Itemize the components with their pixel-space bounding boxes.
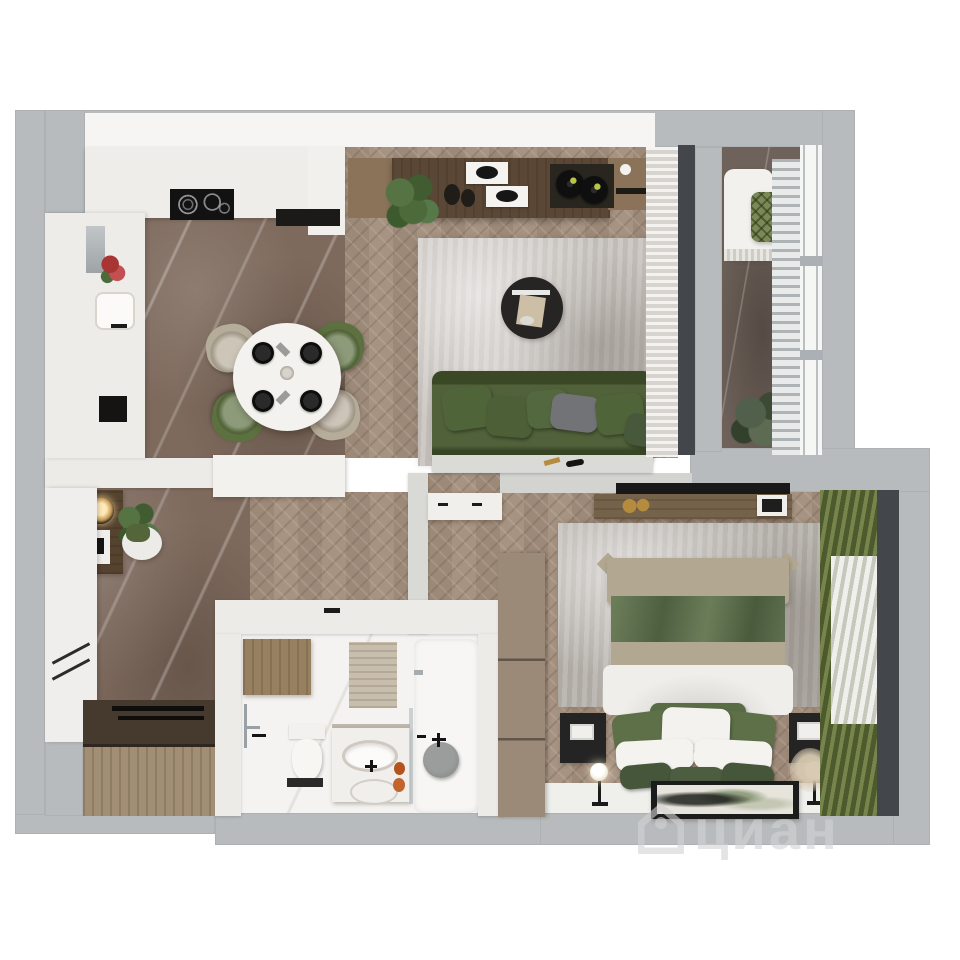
orange-bottle xyxy=(393,778,405,792)
bedroom-open-door xyxy=(428,493,502,520)
living-room-curtain xyxy=(646,147,678,457)
hall-bench-front xyxy=(83,744,215,816)
bathtub xyxy=(414,639,478,813)
bathroom-wall-top xyxy=(215,600,507,634)
window-mullion-line xyxy=(803,145,805,455)
door-handle xyxy=(438,503,448,506)
orange-bottle xyxy=(394,762,405,775)
mirror-reflection-sink xyxy=(350,779,398,805)
balcony-radiator xyxy=(772,159,800,455)
toilet-cistern xyxy=(289,724,325,739)
shower-handle xyxy=(417,735,426,738)
bathroom-door-handle xyxy=(324,608,340,613)
floor-lamp-left xyxy=(590,763,608,781)
hall-white-cabinet xyxy=(213,455,345,497)
hall-left-wall-notch xyxy=(45,740,83,816)
lounge-chair-fringe xyxy=(724,249,773,261)
tray-bowl xyxy=(496,190,518,202)
outer-wall-left xyxy=(15,110,45,834)
dining-plate xyxy=(300,390,322,412)
gold-decor xyxy=(620,497,652,515)
towel-rail xyxy=(244,726,260,729)
window-mullion-line xyxy=(816,145,818,455)
cian-house-logo-icon xyxy=(638,804,684,854)
sofa-pillow-gray xyxy=(549,392,601,434)
shower-stool xyxy=(423,742,459,778)
floor-plan-stage: циан xyxy=(0,0,960,960)
bathroom-wood-cabinet xyxy=(243,639,311,695)
upper-cabinets-strip xyxy=(83,113,655,147)
floor-lamp-left-stem xyxy=(598,780,601,804)
nightstand-tablet xyxy=(570,724,594,740)
sink-faucet-cross xyxy=(370,760,373,772)
window-mullion-h xyxy=(800,350,822,360)
coffee-table-dish xyxy=(520,316,534,325)
dining-plate xyxy=(252,342,274,364)
bathroom-wall-left xyxy=(215,634,241,816)
kitchen-hall-wall xyxy=(45,458,215,488)
bench-mat xyxy=(118,716,204,720)
bedroom-curtain-pelmet xyxy=(877,490,899,816)
watermark-cian: циан xyxy=(638,798,878,860)
floor-lamp-left-base xyxy=(592,802,608,806)
balcony-outer-wall-right xyxy=(822,110,855,455)
outer-wall-topleft-corner xyxy=(45,110,85,213)
outer-wall-bottom-center xyxy=(215,813,545,845)
outer-wall-bottom-left xyxy=(15,814,215,834)
dining-plate xyxy=(252,390,274,412)
dining-plate xyxy=(300,342,322,364)
coffee-machine xyxy=(99,396,127,422)
pouf-green-throw xyxy=(126,524,150,542)
bench-mat xyxy=(112,706,204,711)
tub-handle xyxy=(414,670,423,675)
tray-bowl xyxy=(476,166,498,179)
living-balcony-divider-wall xyxy=(695,147,722,452)
sink-faucet xyxy=(111,324,127,328)
sofa-back-console xyxy=(432,455,653,472)
cooktop xyxy=(170,189,234,220)
bedroom-sheer-curtain xyxy=(831,556,878,724)
console-plant xyxy=(382,168,442,238)
table-centerpiece xyxy=(280,366,294,380)
toilet xyxy=(292,739,322,781)
red-flowers xyxy=(99,252,127,287)
console-vase xyxy=(444,184,460,205)
bedroom-wall-tv xyxy=(616,483,790,494)
counter-black-appliance xyxy=(276,209,340,226)
shower-glass-partition xyxy=(409,708,413,804)
window-mullion-h xyxy=(800,256,822,266)
doorway-floor-patch xyxy=(428,473,500,493)
bath-mat xyxy=(287,778,323,787)
vinyl-record xyxy=(580,176,608,204)
watermark-text: циан xyxy=(694,797,840,862)
bed-green-runner xyxy=(611,596,785,644)
coffee-table-tray xyxy=(512,290,550,295)
shower-beige-mat xyxy=(349,642,397,708)
bedroom-wardrobe xyxy=(498,553,545,817)
console-vase xyxy=(461,189,475,207)
shower-faucet-cross xyxy=(437,733,440,747)
door-handle xyxy=(472,503,482,506)
console-remote xyxy=(616,188,646,194)
console-cup xyxy=(620,164,631,175)
wall-faucet xyxy=(252,734,266,737)
shelf-frame-screen xyxy=(762,499,782,512)
window-frame-dark xyxy=(678,145,695,455)
